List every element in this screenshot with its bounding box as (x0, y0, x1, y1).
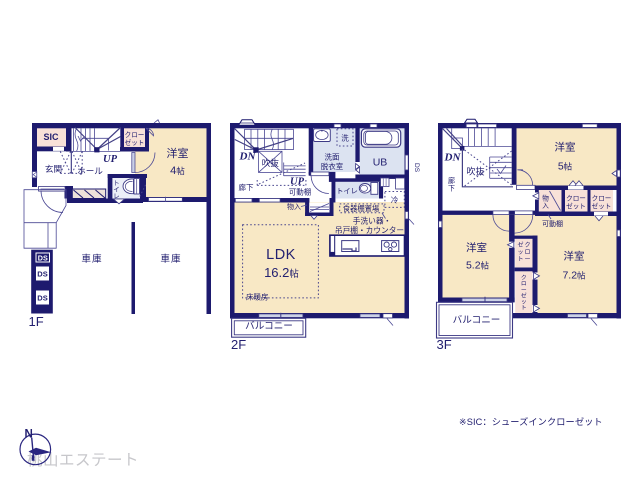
svg-text:床暖房: 床暖房 (246, 292, 269, 302)
svg-text:廊: 廊 (448, 176, 455, 185)
svg-text:7.2帖: 7.2帖 (562, 269, 586, 281)
svg-text:DS: DS (37, 294, 47, 303)
svg-text:ー: ー (524, 257, 530, 263)
svg-text:3F: 3F (437, 337, 452, 352)
svg-text:食器棚置場: 食器棚置場 (343, 204, 379, 213)
svg-text:DS: DS (37, 270, 47, 279)
svg-text:ト: ト (517, 257, 523, 263)
svg-text:トイレ: トイレ (336, 187, 358, 196)
svg-text:ゼット: ゼット (125, 138, 145, 147)
svg-text:ク: ク (524, 242, 530, 249)
svg-text:ホール: ホール (77, 166, 103, 176)
svg-text:DS: DS (38, 254, 48, 263)
svg-text:※SIC：シューズインクローゼット: ※SIC：シューズインクローゼット (459, 416, 603, 427)
svg-text:5.2帖: 5.2帖 (466, 260, 490, 272)
svg-text:UP: UP (103, 154, 118, 165)
svg-text:ロ: ロ (524, 250, 530, 256)
svg-text:ゼ: ゼ (517, 241, 523, 249)
svg-text:クロー: クロー (125, 131, 145, 139)
svg-text:クロー: クロー (566, 195, 586, 203)
svg-text:物: 物 (542, 194, 549, 203)
svg-text:入: 入 (542, 203, 549, 210)
svg-text:洋室: 洋室 (466, 241, 487, 254)
svg-text:UP: UP (290, 177, 305, 188)
svg-text:吹抜: 吹抜 (262, 157, 280, 168)
svg-text:DS: DS (413, 163, 420, 173)
svg-text:手洗い器・: 手洗い器・ (353, 216, 391, 226)
svg-text:洗: 洗 (341, 133, 349, 143)
svg-text:洋室: 洋室 (555, 141, 576, 154)
svg-text:2F: 2F (231, 337, 246, 352)
svg-text:可動棚: 可動棚 (289, 187, 312, 197)
svg-text:ト: ト (521, 306, 527, 312)
svg-text:洋室: 洋室 (564, 250, 585, 263)
svg-text:冷: 冷 (391, 195, 399, 205)
svg-text:DN: DN (239, 151, 257, 163)
svg-text:吊戸棚・カウンター: 吊戸棚・カウンター (335, 225, 404, 235)
svg-text:4帖: 4帖 (170, 165, 185, 177)
svg-text:LDK: LDK (266, 247, 296, 263)
svg-text:玄関: 玄関 (45, 163, 62, 174)
svg-text:UB: UB (373, 157, 388, 169)
svg-text:廊下: 廊下 (239, 182, 254, 192)
svg-text:ゼット: ゼット (592, 202, 612, 211)
svg-text:SIC: SIC (43, 132, 59, 142)
svg-text:クロー: クロー (592, 195, 612, 203)
svg-text:物入: 物入 (287, 202, 301, 211)
svg-text:5帖: 5帖 (558, 161, 573, 173)
svg-text:脱衣室: 脱衣室 (321, 161, 344, 171)
svg-text:洗面: 洗面 (325, 152, 340, 162)
svg-text:レ: レ (113, 193, 119, 200)
svg-text:ク: ク (521, 275, 527, 282)
svg-text:バルコニー: バルコニー (453, 315, 501, 326)
svg-text:下: 下 (448, 185, 455, 193)
svg-text:可動棚: 可動棚 (542, 219, 563, 228)
svg-text:1F: 1F (29, 314, 44, 329)
svg-text:吹抜: 吹抜 (466, 166, 484, 177)
svg-text:ゼ: ゼ (521, 292, 527, 300)
svg-text:バルコニー: バルコニー (245, 321, 293, 332)
svg-text:DN: DN (444, 152, 462, 164)
svg-text:車庫: 車庫 (81, 253, 102, 265)
svg-text:車庫: 車庫 (160, 253, 181, 265)
svg-text:ゼット: ゼット (566, 202, 586, 211)
svg-text:ッ: ッ (517, 250, 523, 256)
svg-text:洋室: 洋室 (167, 146, 189, 160)
